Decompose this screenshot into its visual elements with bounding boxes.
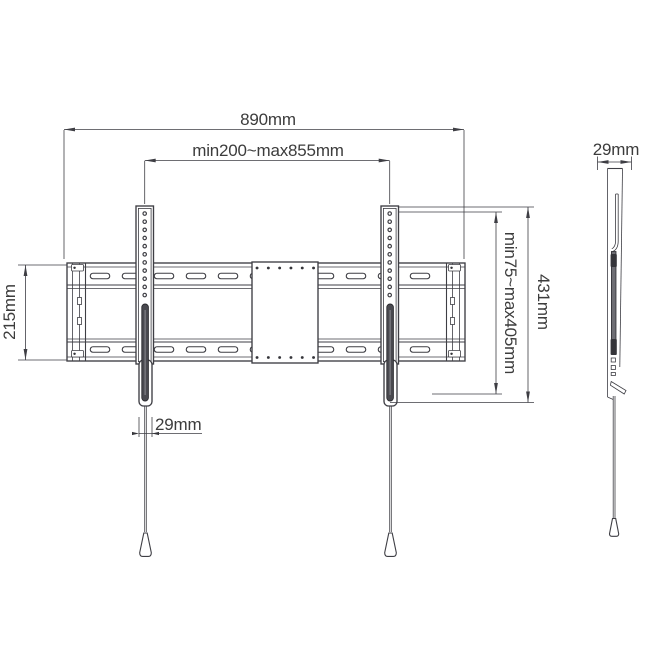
pull-cord-left <box>140 406 152 556</box>
pull-handle-side <box>610 519 619 537</box>
dim-vesa-width-label: min200~max855mm <box>192 141 344 160</box>
dim-arm-height-label: 431mm <box>534 274 553 330</box>
dim-depth-label: 29mm <box>593 140 639 159</box>
pull-handle-right <box>385 533 397 556</box>
technical-drawing: 890mm min200~max855mm 215mm min75~max405… <box>0 0 647 666</box>
pull-cord-side <box>610 396 619 536</box>
center-plate <box>252 262 318 363</box>
dim-plate-height-label: 215mm <box>0 284 19 340</box>
dim-vesa-width: min200~max855mm <box>145 141 390 204</box>
dim-vesa-height-label: min75~max405mm <box>501 232 520 374</box>
left-arm <box>136 206 154 406</box>
hook-profile <box>612 194 618 252</box>
side-view: 29mm <box>593 140 639 536</box>
dim-arm-width-label: 29mm <box>155 415 201 434</box>
side-profile <box>608 169 627 537</box>
latch-foot <box>610 382 626 395</box>
dim-depth: 29mm <box>593 140 639 170</box>
dim-plate-height: 215mm <box>0 265 67 360</box>
front-view: 890mm min200~max855mm 215mm min75~max405… <box>0 110 553 556</box>
wall-mount-drawing: 890mm min200~max855mm 215mm min75~max405… <box>0 0 647 666</box>
dim-overall-width-label: 890mm <box>240 110 296 129</box>
dim-arm-width: 29mm <box>132 415 202 437</box>
pull-handle-left <box>140 533 152 556</box>
right-arm <box>381 206 399 406</box>
pull-cord-right <box>385 406 397 556</box>
dim-overall-width: 890mm <box>64 110 464 259</box>
latch-mechanism <box>610 252 626 395</box>
